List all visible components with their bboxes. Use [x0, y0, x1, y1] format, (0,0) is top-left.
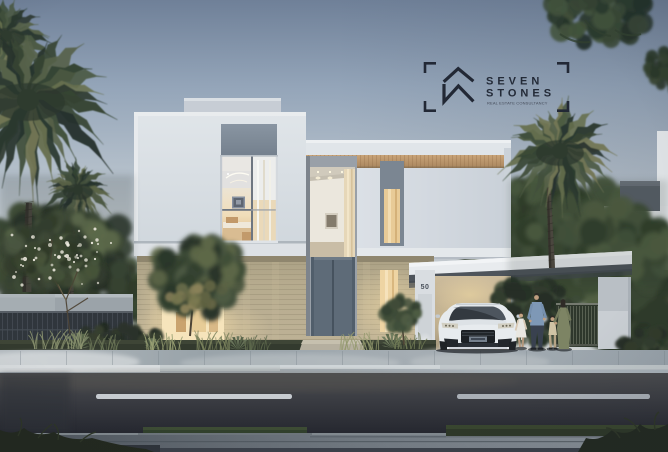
svg-text:STONES: STONES	[486, 88, 555, 100]
svg-text:SEVEN: SEVEN	[486, 76, 543, 88]
svg-text:REAL ESTATE CONSULTANCY: REAL ESTATE CONSULTANCY	[487, 101, 548, 106]
svg-text:50: 50	[421, 284, 430, 291]
